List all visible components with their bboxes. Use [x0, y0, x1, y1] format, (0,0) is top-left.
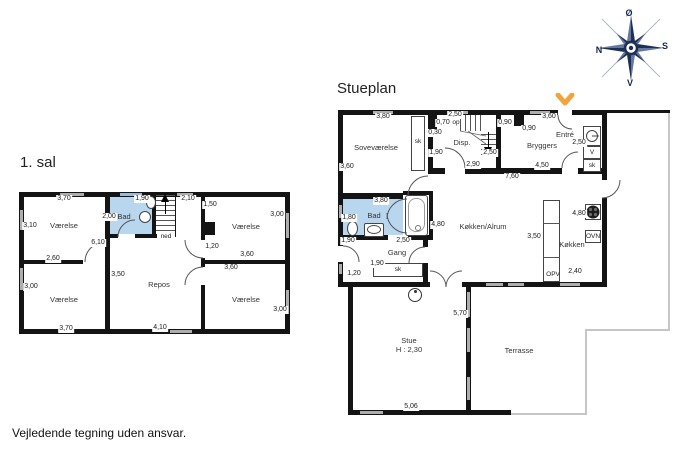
floorplan-drawing: 1. sal [0, 0, 687, 457]
room-label: Bryggers [527, 142, 557, 150]
window [467, 377, 470, 400]
dim-label: 3,70 [56, 195, 72, 203]
dim-label: 1,80 [341, 214, 357, 222]
dim-label: 3,60 [541, 113, 557, 121]
dim-label: 3,70 [58, 325, 74, 333]
door-arc [430, 271, 446, 287]
wall [607, 110, 670, 113]
dim-label: 3,00 [269, 211, 285, 219]
door-arc [343, 246, 359, 262]
dim-label: 4,50 [534, 162, 550, 170]
dim-label: 2,50 [571, 139, 587, 147]
ground-floor-plan: 3,80 2,50 op 0,70 0,30 0,90 0,90 3,60 2,… [338, 108, 678, 420]
wall [462, 282, 607, 287]
closet-label: V [590, 149, 594, 156]
dim-label: 1,90 [428, 149, 444, 157]
dim-label: 3,80 [375, 113, 391, 121]
room-label: Bad [117, 213, 130, 221]
window [486, 283, 503, 286]
window [560, 283, 580, 286]
stove-box [585, 204, 601, 220]
dim-label: 3,80 [373, 197, 389, 205]
sink-icon [139, 211, 151, 223]
dim-label: 2,60 [45, 255, 61, 263]
appliance-label: OPV [546, 271, 560, 278]
appliance-label: OVN [586, 233, 600, 240]
terrace-outline [585, 329, 670, 331]
toilet-icon [347, 221, 358, 236]
compass-south-label: S [662, 41, 668, 51]
room-label: Værelse [50, 222, 78, 230]
room-label: Stue [401, 337, 416, 345]
door-arc [185, 267, 203, 285]
terrace-outline [668, 113, 670, 330]
compass-east-label: Ø [625, 8, 632, 18]
dim-label: 0,70 [435, 119, 451, 127]
room-label: Værelse [232, 223, 260, 231]
chimney [203, 222, 215, 235]
closet-label: sk [589, 162, 596, 169]
dim-label: 0,90 [521, 125, 537, 133]
counter-divider [543, 223, 560, 224]
room-label: Disp. [453, 139, 470, 147]
dim-label: 4,10 [152, 324, 168, 332]
compass-north-label: N [596, 45, 603, 55]
dim-label: 3,60 [339, 163, 355, 171]
disclaimer-text: Vejledende tegning uden ansvar. [12, 426, 186, 440]
first-floor-title: 1. sal [20, 154, 56, 171]
room-label: Køkken [559, 241, 584, 249]
dim-label: 2,40 [567, 268, 583, 276]
bathtub-drain [415, 225, 421, 231]
first-floor-plan: 3,70 1,90 2,10 3,10 2,00 1,50 3,00 6,10 … [19, 192, 290, 334]
window [360, 411, 383, 414]
dim-label: 4,80 [571, 210, 587, 218]
wall [429, 191, 433, 240]
dim-label: 1,20 [346, 270, 362, 278]
room-label: Gang [388, 249, 406, 257]
sink-icon [367, 225, 381, 234]
room-label: Soveværelse [354, 144, 398, 152]
counter-divider [543, 257, 560, 258]
door-arc [562, 152, 578, 168]
window [339, 264, 342, 274]
wall [423, 263, 428, 282]
stairs-treads [460, 115, 483, 131]
dim-label: 6,10 [90, 239, 106, 247]
door-arc [445, 148, 465, 168]
wall [135, 234, 157, 238]
dim-label: 7,60 [504, 173, 520, 181]
wood-stove-dot [414, 290, 417, 293]
stairs-arrow-stem [488, 132, 489, 148]
dim-label: 1,90 [340, 237, 356, 245]
room-label: Terrasse [505, 347, 534, 355]
dim-label: 3,50 [110, 271, 126, 279]
wall [105, 234, 118, 238]
wall [602, 198, 607, 287]
wall [201, 285, 205, 334]
door-arc [409, 247, 425, 263]
dim-label: 3,60 [223, 264, 239, 272]
stairs-edge [175, 192, 176, 237]
stairs-arrow-stem [165, 201, 166, 214]
terrace-outline [510, 413, 587, 415]
ground-floor-title: Stueplan [337, 80, 396, 97]
door-arc [185, 240, 203, 258]
dim-label: 1,20 [204, 243, 220, 251]
wall [348, 287, 353, 415]
stairs-direction-label: op [452, 119, 459, 126]
dim-label: 3,00 [272, 306, 288, 314]
closet-label: sk [415, 138, 422, 145]
door-arc [558, 115, 572, 129]
stairs-direction-label: ned [161, 233, 172, 240]
dim-label: 5,06 [403, 403, 419, 411]
dim-label: 0,30 [427, 129, 443, 137]
door-arc [446, 271, 462, 287]
dim-label: 3,00 [23, 283, 39, 291]
room-label: Værelse [232, 296, 260, 304]
wall [205, 260, 290, 264]
dim-label: 4,80 [430, 221, 446, 229]
wall [428, 168, 445, 174]
window [467, 328, 470, 352]
window [508, 283, 524, 286]
dim-label: 2,50 [482, 149, 498, 157]
window [170, 330, 192, 333]
room-label: Bad [367, 212, 380, 220]
terrace-outline [585, 329, 587, 415]
wall [338, 110, 343, 246]
dim-label: 0,90 [497, 119, 513, 127]
room-label: Køkken/Alrum [459, 223, 506, 231]
closet-label: sk [395, 266, 402, 273]
dim-label: 1,90 [134, 195, 150, 203]
dim-label: 2,50 [447, 111, 463, 119]
room-label: Repos [148, 281, 170, 289]
dim-label: 1,50 [202, 201, 218, 209]
dim-label: 2,90 [465, 161, 481, 169]
dim-label: 3,10 [22, 222, 38, 230]
dim-label: 2,50 [395, 237, 411, 245]
compass-west-label: V [627, 78, 633, 88]
room-label: Værelse [50, 296, 78, 304]
wall [423, 237, 428, 247]
dim-label: 2,00 [101, 213, 117, 221]
dim-label: 3,50 [526, 233, 542, 241]
room-label: Entré [556, 131, 574, 139]
dim-label: 3,60 [239, 251, 255, 259]
entrance-arrow-icon [555, 93, 575, 113]
window [286, 213, 289, 238]
dim-label: 5,70 [452, 310, 468, 318]
room-ceiling-height: H : 2,30 [396, 346, 422, 354]
kitchen-counter [543, 200, 560, 282]
wall [338, 193, 403, 199]
dim-label: 2,10 [180, 195, 196, 203]
door-arc [602, 180, 620, 198]
dim-label: 1,90 [369, 260, 385, 268]
